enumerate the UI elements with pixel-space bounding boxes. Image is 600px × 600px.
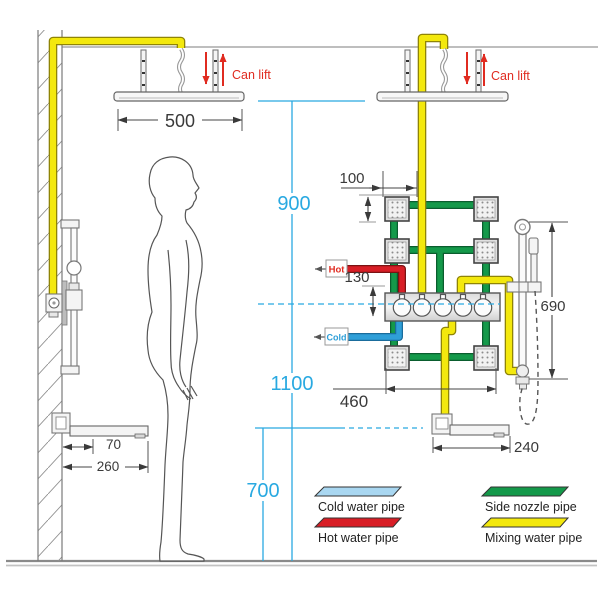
dim-690-label: 690: [540, 298, 565, 315]
person-figure: [147, 157, 204, 561]
dim-1100-label: 1100: [270, 373, 313, 395]
legend-label-cold: Cold water pipe: [318, 500, 405, 514]
side-nozzle: [474, 346, 498, 370]
legend-label-hot: Hot water pipe: [318, 531, 399, 545]
support-rod: [476, 50, 481, 93]
slide-bar-bottom-cap: [517, 365, 529, 377]
slide-bar-holder: [507, 282, 541, 292]
side-nozzle: [385, 346, 409, 370]
can-lift-label: Can lift: [232, 68, 271, 82]
side-nozzle: [385, 239, 409, 263]
dim-700-label: 700: [246, 480, 279, 502]
dim-70: 70: [63, 437, 121, 454]
slide-bar-top-cap: [515, 220, 530, 235]
legend-swatch-hot: [315, 518, 401, 527]
dim-240-label: 240: [514, 439, 539, 456]
support-rod: [213, 50, 218, 93]
right-rain-head: [377, 49, 508, 101]
cold-inlet-label: Cold: [314, 328, 348, 345]
dim-900-label: 900: [277, 193, 310, 215]
spout-aerator: [494, 433, 504, 437]
side-nozzle: [474, 197, 498, 221]
dim-500-label: 500: [165, 111, 195, 131]
dim-240: 240: [433, 436, 539, 456]
hand-shower-holder: [66, 290, 82, 310]
legend-label-mixing: Mixing water pipe: [485, 531, 582, 545]
dim-70-label: 70: [106, 437, 121, 452]
valve-knob: [413, 299, 430, 316]
shower-head-plate: [114, 92, 244, 101]
slide-bar-bracket: [61, 220, 79, 228]
valve-knob: [393, 299, 410, 316]
dim-130: 130: [344, 269, 385, 316]
hot-inlet-label: Hot: [315, 260, 347, 277]
can-lift-label: Can lift: [491, 69, 530, 83]
valve-knob: [474, 299, 491, 316]
dim-100-label: 100: [339, 170, 364, 187]
left-rain-head: [114, 49, 244, 101]
cold-label: Cold: [327, 333, 347, 343]
support-rod: [141, 50, 146, 93]
floor-line: [6, 561, 597, 566]
side-nozzle: [385, 197, 409, 221]
valve-knob: [454, 299, 471, 316]
hose-connector: [516, 377, 529, 384]
legend-label-nozzle: Side nozzle pipe: [485, 500, 577, 514]
shower-head-plate: [377, 92, 508, 101]
legend-swatch-mixing: [482, 518, 568, 527]
legend-swatch-cold: [315, 487, 401, 496]
shower-installation-diagram: Can lift Can lift 500 900 1100 700: [0, 0, 600, 600]
dim-260-label: 260: [97, 459, 120, 474]
slide-bar: [519, 230, 526, 372]
spout-aerator: [135, 434, 145, 438]
hot-label: Hot: [329, 265, 346, 276]
dim-500: 500: [118, 108, 242, 131]
hand-shower-handle: [531, 254, 537, 285]
left-spout: [52, 413, 148, 438]
support-rod: [405, 50, 410, 93]
slider-ring: [67, 261, 81, 275]
dim-460: 460: [333, 368, 496, 411]
slide-bar-bracket: [61, 366, 79, 374]
right-spout: [432, 414, 509, 437]
hand-shower-head: [529, 238, 538, 254]
diagram-canvas: Can lift Can lift 500 900 1100 700: [0, 0, 600, 600]
thermostatic-valve: [385, 293, 500, 321]
dim-460-label: 460: [340, 392, 368, 411]
dim-130-label: 130: [344, 269, 369, 286]
valve-knob: [434, 299, 451, 316]
side-nozzle: [474, 239, 498, 263]
legend-swatch-nozzle: [482, 487, 568, 496]
